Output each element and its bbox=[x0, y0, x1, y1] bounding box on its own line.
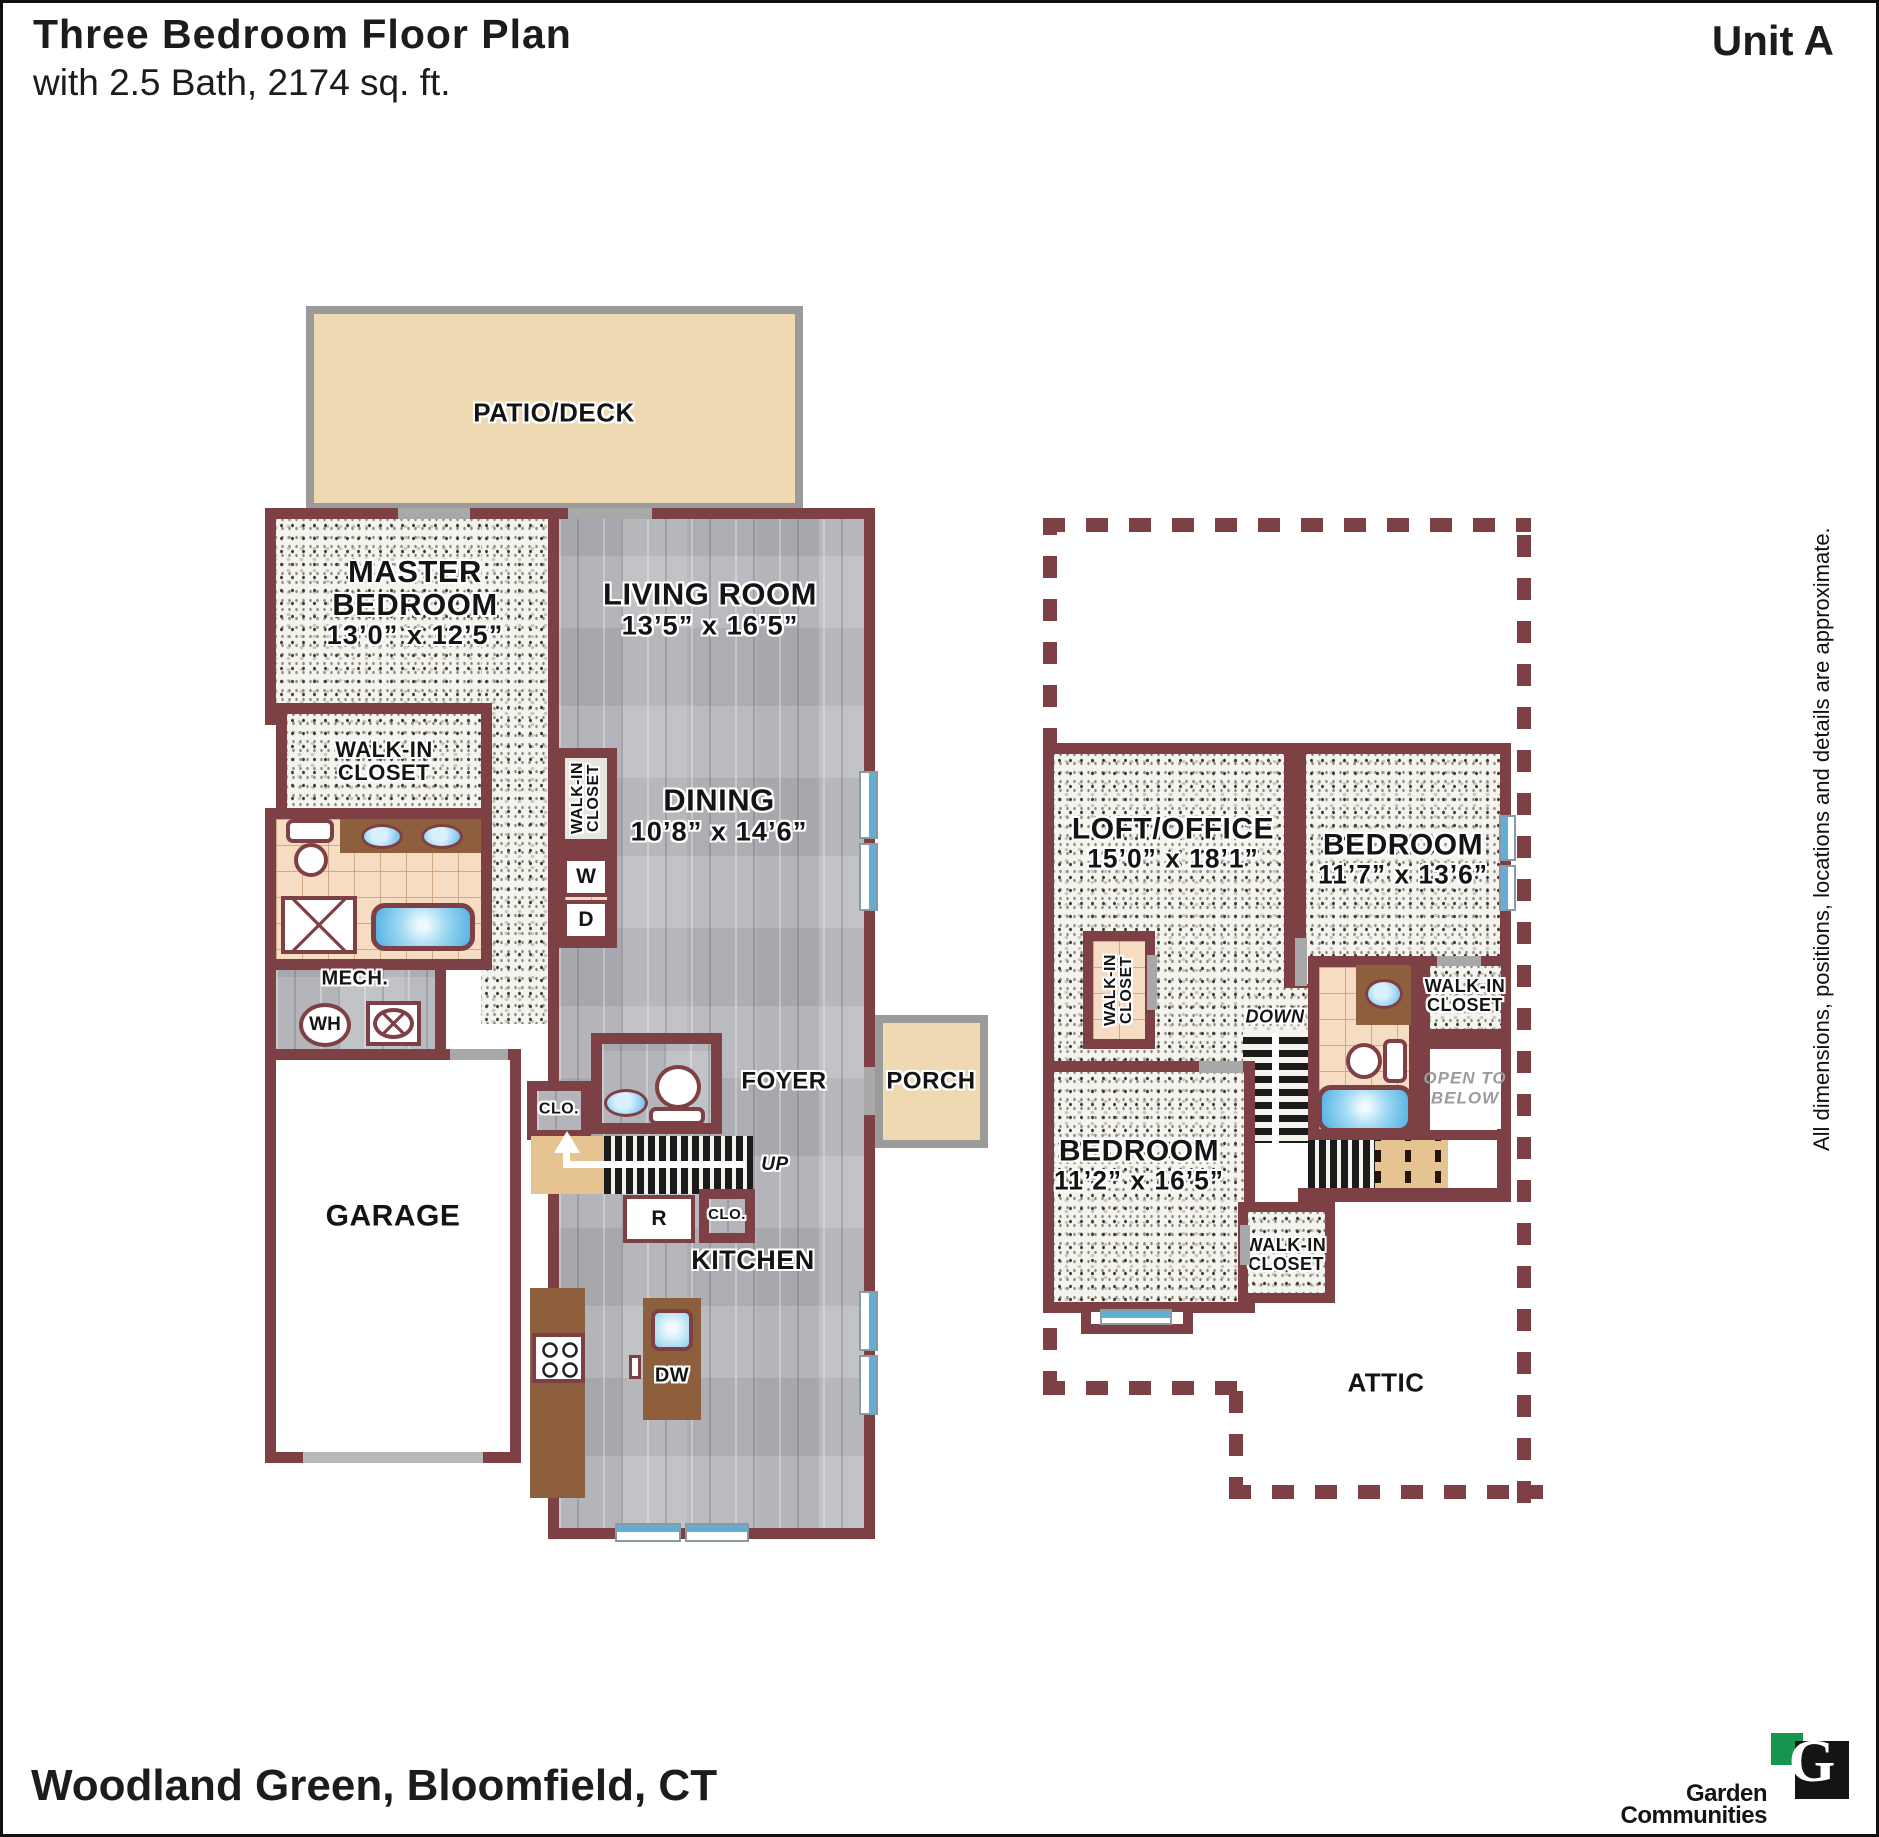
attic-dashed-wall-top bbox=[1043, 518, 1531, 532]
window-icon bbox=[1100, 1309, 1172, 1325]
shower-icon bbox=[281, 896, 357, 954]
page-title-block: Three Bedroom Floor Plan with 2.5 Bath, … bbox=[33, 11, 572, 104]
wic4-line2: CLOSET bbox=[1425, 996, 1505, 1015]
property-location: Woodland Green, Bloomfield, CT bbox=[31, 1761, 717, 1811]
door-gap bbox=[1240, 1225, 1250, 1265]
dining-name: DINING bbox=[631, 784, 808, 817]
disclaimer-text: All dimensions, positions, locations and… bbox=[1809, 551, 1835, 1151]
walk-in-closet-2f-right-label: WALK-IN CLOSET bbox=[1425, 977, 1505, 1015]
patio-label: PATIO/DECK bbox=[473, 399, 634, 426]
attic-dashed-row-bottom bbox=[1229, 1485, 1543, 1499]
walk-in-closet-2f-left-label: WALK-IN CLOSET bbox=[1103, 954, 1135, 1026]
logo-brand-text: Garden Communities bbox=[1620, 1783, 1767, 1827]
down-label: DOWN bbox=[1246, 1008, 1305, 1027]
wic5-line2: CLOSET bbox=[1246, 1255, 1326, 1274]
washer-icon: W bbox=[563, 857, 609, 897]
bedroom2-label: BEDROOM 11’7” x 13’6” bbox=[1318, 829, 1488, 888]
living-name: LIVING ROOM bbox=[603, 578, 817, 611]
loft-name: LOFT/OFFICE bbox=[1072, 813, 1274, 845]
mech-label: MECH. bbox=[322, 969, 389, 990]
wic2-line2: CLOSET bbox=[585, 764, 602, 832]
wall-below-stairs bbox=[1298, 1188, 1511, 1202]
toilet-bowl-icon bbox=[1346, 1043, 1382, 1079]
master-line1: MASTER bbox=[327, 556, 504, 589]
dryer-label: D bbox=[578, 908, 593, 932]
open-to-below-label: OPEN TO BELOW bbox=[1423, 1069, 1506, 1110]
sink-icon bbox=[361, 824, 403, 849]
window-icon bbox=[1499, 815, 1516, 861]
bathtub-icon bbox=[1317, 1085, 1413, 1133]
furnace-icon bbox=[366, 1001, 421, 1046]
furnace-coil-icon bbox=[373, 1008, 414, 1039]
toilet-icon bbox=[286, 819, 334, 843]
living-room-label: LIVING ROOM 13’5” x 16’5” bbox=[603, 578, 817, 639]
dishwasher-label: DW bbox=[655, 1366, 689, 1387]
door-gap bbox=[864, 1067, 875, 1115]
kitchen-counter bbox=[530, 1288, 585, 1498]
kitchen-label: KITCHEN bbox=[691, 1246, 815, 1274]
refrigerator-label: R bbox=[651, 1207, 666, 1231]
door-gap bbox=[1295, 938, 1307, 986]
wic4-line1: WALK-IN bbox=[1425, 977, 1505, 996]
attic-dashed-row-left bbox=[1043, 1381, 1243, 1395]
door-gap bbox=[1147, 955, 1157, 1010]
logo-g-icon: G bbox=[1775, 1727, 1849, 1796]
bathtub-icon bbox=[371, 903, 475, 951]
stove-icon bbox=[532, 1333, 585, 1383]
stairs-lower-treads bbox=[1308, 1140, 1375, 1192]
down-arrow-stem bbox=[1272, 1033, 1279, 1155]
toilet-icon bbox=[649, 1107, 705, 1125]
door-gap bbox=[1437, 956, 1481, 966]
garage bbox=[265, 1049, 521, 1463]
otb-line1: OPEN TO bbox=[1423, 1069, 1506, 1089]
walk-in-closet-master-label: WALK-IN CLOSET bbox=[335, 738, 433, 784]
closet-foyer-label: CLO. bbox=[539, 1102, 579, 1119]
bedroom3-name: BEDROOM bbox=[1054, 1135, 1224, 1167]
up-arrow-icon bbox=[554, 1131, 580, 1153]
kitchen-sink-icon bbox=[651, 1309, 693, 1351]
brand-line2: Communities bbox=[1620, 1805, 1767, 1827]
door-gap bbox=[398, 508, 470, 519]
master-dims: 13’0” x 12’5” bbox=[327, 621, 504, 650]
attic-dashed-wall-left bbox=[1043, 518, 1057, 750]
washer-label: W bbox=[576, 865, 596, 889]
window-icon bbox=[685, 1523, 749, 1542]
garden-communities-logo: G Garden Communities bbox=[1543, 1725, 1853, 1825]
window-icon bbox=[859, 843, 878, 911]
window-icon bbox=[859, 1291, 878, 1351]
door-gap bbox=[568, 508, 652, 519]
living-dims: 13’5” x 16’5” bbox=[603, 611, 817, 640]
wic1-line1: WALK-IN bbox=[335, 738, 433, 761]
wall-right-lower bbox=[1497, 1129, 1511, 1193]
bedroom2-dims: 11’7” x 13’6” bbox=[1318, 861, 1488, 889]
wic3-line1: WALK-IN bbox=[1102, 954, 1119, 1026]
door-gap bbox=[1199, 1061, 1243, 1073]
window-icon bbox=[615, 1523, 681, 1542]
wic5-line1: WALK-IN bbox=[1246, 1236, 1326, 1255]
page-subtitle: with 2.5 Bath, 2174 sq. ft. bbox=[33, 62, 572, 104]
walk-in-closet-2f-bottom-label: WALK-IN CLOSET bbox=[1246, 1236, 1326, 1274]
master-bedroom-label: MASTER BEDROOM 13’0” x 12’5” bbox=[327, 556, 504, 650]
wic3-line2: CLOSET bbox=[1118, 956, 1135, 1024]
dryer-icon: D bbox=[563, 900, 609, 940]
wh-label: WH bbox=[309, 1014, 341, 1036]
window-icon bbox=[859, 1355, 878, 1415]
closet-kitchen-label: CLO. bbox=[708, 1207, 746, 1223]
attic-dashed-wall-right bbox=[1517, 518, 1531, 1503]
stairs-lower-tan bbox=[1375, 1140, 1448, 1192]
loft-label: LOFT/OFFICE 15’0” x 18’1” bbox=[1072, 813, 1274, 872]
bedroom3-dims: 11’2” x 16’5” bbox=[1054, 1167, 1224, 1195]
toilet-bowl-icon bbox=[655, 1065, 701, 1109]
wic1-line2: CLOSET bbox=[335, 761, 433, 784]
sink-icon bbox=[604, 1089, 648, 1117]
bedroom3-label: BEDROOM 11’2” x 16’5” bbox=[1054, 1135, 1224, 1194]
sink-icon bbox=[421, 824, 463, 849]
wic2-line1: WALK-IN bbox=[569, 762, 586, 834]
walk-in-closet-hall-label: WALK-IN CLOSET bbox=[570, 762, 602, 834]
refrigerator-icon: R bbox=[623, 1195, 695, 1243]
dishwasher-handle bbox=[629, 1355, 641, 1379]
otb-line2: BELOW bbox=[1423, 1089, 1506, 1109]
floor-plan-page: Three Bedroom Floor Plan with 2.5 Bath, … bbox=[0, 0, 1879, 1837]
bedroom2-name: BEDROOM bbox=[1318, 829, 1488, 861]
water-heater-icon: WH bbox=[299, 1003, 351, 1047]
up-arrow-stem bbox=[563, 1161, 745, 1168]
master-line2: BEDROOM bbox=[327, 589, 504, 622]
page-title: Three Bedroom Floor Plan bbox=[33, 11, 572, 58]
sink-icon bbox=[1365, 979, 1403, 1009]
dining-label: DINING 10’8” x 14’6” bbox=[631, 784, 808, 845]
loft-dims: 15’0” x 18’1” bbox=[1072, 845, 1274, 873]
living-dining-kitchen-area bbox=[548, 508, 875, 1539]
garage-door bbox=[303, 1452, 483, 1463]
attic-dashed-col-mid bbox=[1229, 1381, 1243, 1499]
door-gap bbox=[450, 1049, 508, 1060]
dining-dims: 10’8” x 14’6” bbox=[631, 817, 808, 846]
unit-label: Unit A bbox=[1712, 17, 1834, 65]
window-icon bbox=[859, 771, 878, 839]
window-icon bbox=[1499, 865, 1516, 911]
attic-label: ATTIC bbox=[1347, 1369, 1424, 1396]
porch-label: PORCH bbox=[886, 1068, 975, 1093]
foyer-label: FOYER bbox=[741, 1068, 826, 1093]
garage-label: GARAGE bbox=[326, 1200, 461, 1232]
up-label: UP bbox=[761, 1155, 788, 1175]
toilet-icon bbox=[1383, 1039, 1407, 1083]
toilet-bowl-icon bbox=[294, 843, 328, 877]
